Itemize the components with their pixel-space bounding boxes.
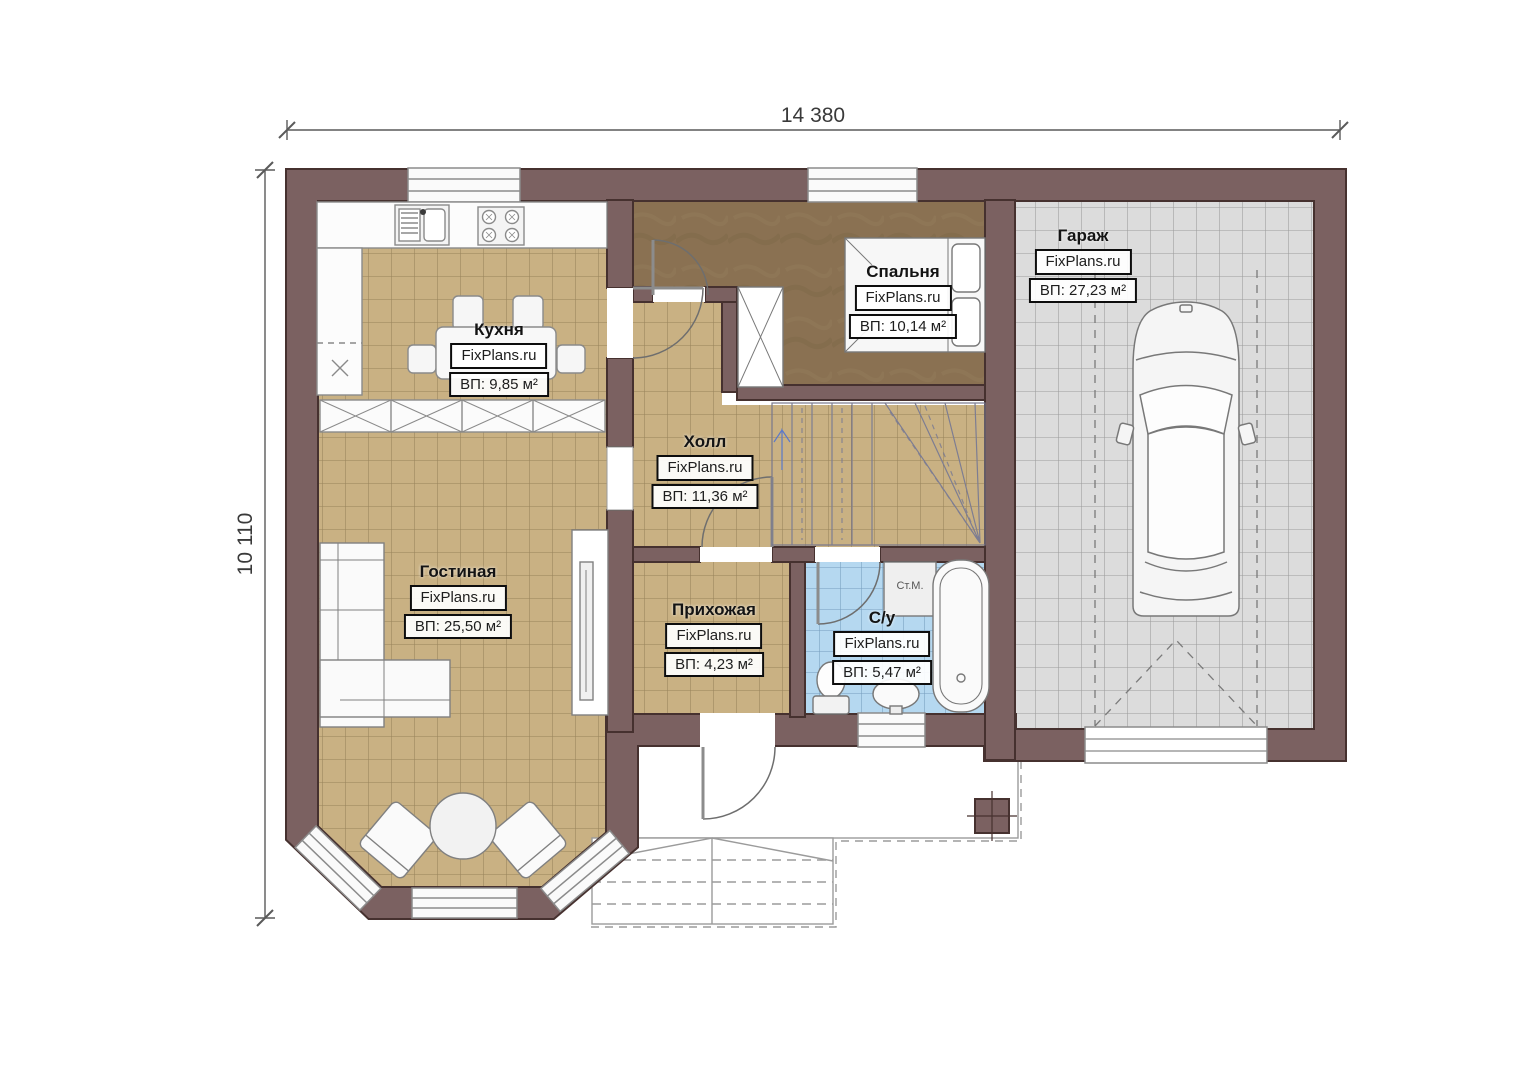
dimension-height-text: 10 110 <box>234 513 257 576</box>
kitchen-stove <box>478 207 524 245</box>
kitchen-chair <box>557 345 585 373</box>
wall-hall-bath-right <box>880 547 985 562</box>
dimension-left <box>255 162 275 926</box>
wall-bedroom-side <box>722 302 737 392</box>
floor-plan-svg: 14 380 10 110 <box>0 0 1528 1080</box>
bathtub <box>933 560 989 712</box>
wall-living-hall <box>607 510 633 732</box>
floor-plan-canvas: 14 380 10 110 Кухня FixPlans.ru ВП: 9,85… <box>0 0 1528 1080</box>
porch-column <box>967 791 1017 841</box>
tv-unit <box>572 530 608 715</box>
window-bath-south <box>858 713 925 747</box>
opening-entry-door <box>700 547 772 562</box>
car <box>1116 302 1256 616</box>
window-bay-bottom <box>412 888 517 918</box>
kitchen-counter-top <box>317 202 607 248</box>
dimension-width-text: 14 380 <box>781 104 845 127</box>
window-kitchen <box>408 168 520 202</box>
entry-floor <box>633 562 793 717</box>
porch-slab <box>637 745 1018 838</box>
wall-kitchen-hall-lower <box>607 358 633 447</box>
opening-living-hall <box>607 447 633 510</box>
washing-machine <box>884 562 936 616</box>
pillow <box>952 244 980 292</box>
car-roof <box>1148 427 1224 559</box>
bed <box>845 238 985 352</box>
garage-door <box>1085 727 1267 763</box>
wall-kitchen-hall-upper <box>607 200 633 288</box>
kitchen-chair <box>513 296 543 330</box>
wall-bedroom-stub-right <box>705 287 737 302</box>
kitchen-sink <box>395 205 449 245</box>
kitchen-table <box>436 327 556 379</box>
wall-hall-entry-left <box>633 547 700 562</box>
wall-hall-entry-mid <box>772 547 815 562</box>
bay-round-table <box>430 793 496 859</box>
porch <box>589 745 1021 927</box>
kitchen-chair <box>453 296 483 330</box>
kitchen-chair <box>408 345 436 373</box>
kitchen-counter-left <box>317 248 362 395</box>
wall-entry-bath <box>790 562 805 717</box>
pillow <box>952 298 980 346</box>
opening-kitchen-hall <box>607 288 633 358</box>
cabinet-row-x <box>320 400 605 432</box>
opening-front-door <box>700 713 775 747</box>
wardrobe <box>738 287 783 387</box>
window-bedroom <box>808 168 917 202</box>
car-badge <box>1180 305 1192 312</box>
opening-bath-door <box>815 547 880 562</box>
